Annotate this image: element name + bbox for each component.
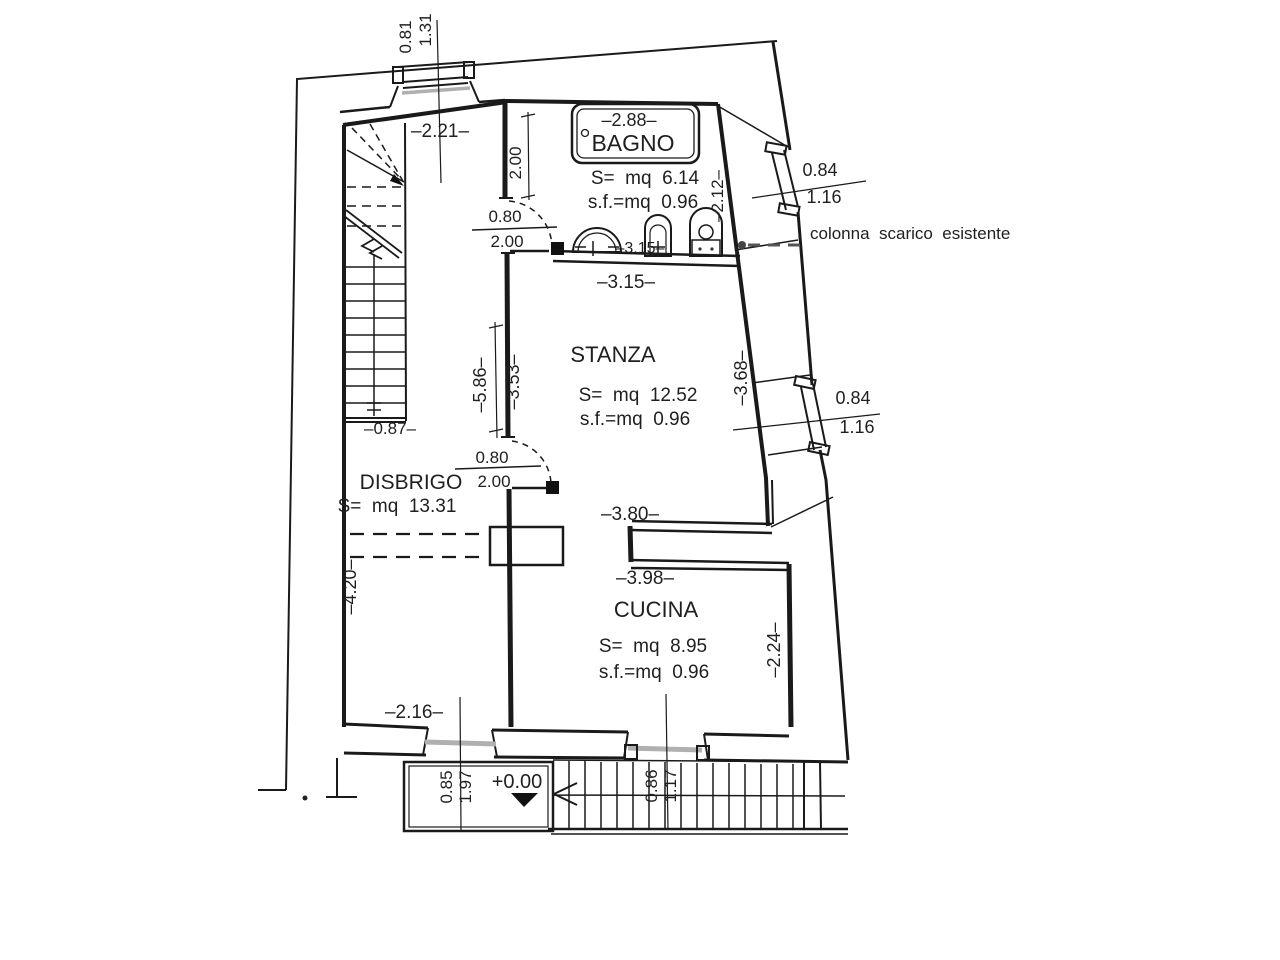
boundary-point — [303, 796, 308, 801]
stanza-area: S= mq 12.52 — [579, 385, 698, 406]
dim-2.16: –2.16– — [385, 702, 444, 723]
dim-bagno-width: –2.88– — [601, 110, 656, 130]
dim-window3-height: 1.17 — [661, 769, 680, 802]
dim-2.12: –2.12– — [708, 169, 727, 222]
level-label: +0.00 — [492, 771, 543, 793]
flue-box — [350, 527, 563, 565]
dim-3.53: –3.53– — [503, 354, 523, 409]
sink — [573, 228, 621, 256]
dim-window3-width: 0.86 — [642, 769, 661, 802]
floor-plan-drawing: –3.15– — [0, 0, 1280, 960]
room-label-stanza: STANZA — [570, 342, 655, 367]
dim-window1-height: 1.16 — [806, 187, 841, 207]
right-window-upper — [765, 142, 799, 215]
dim-5.86: –5.86– — [470, 357, 490, 412]
room-label-cucina: CUCINA — [614, 597, 699, 622]
bagno-area: S= mq 6.14 — [591, 168, 700, 189]
dim-window2-height: 1.16 — [839, 417, 874, 437]
dim-3.15: –3.15– — [597, 272, 656, 293]
dim-window2-width: 0.84 — [835, 388, 870, 408]
dim-2.21: –2.21– — [411, 121, 470, 142]
dim-2.24: –2.24– — [764, 622, 784, 677]
stanza-sf: s.f.=mq 0.96 — [580, 409, 690, 430]
floor-plan-canvas: –3.15– — [0, 0, 1280, 960]
dim-3.98: –3.98– — [616, 568, 675, 589]
dim-bagno-door-width: 0.80 — [488, 207, 521, 226]
dim-stanza-door-width: 0.80 — [475, 448, 508, 467]
room-label-bagno: BAGNO — [591, 130, 674, 156]
dim-door1-width: 0.85 — [437, 770, 456, 803]
right-window-lower — [794, 376, 829, 455]
labels: 0.81 1.31 –2.21– 2.00 –2.88– BAGNO S= mq… — [338, 13, 1011, 803]
dim-4.20: –4.20– — [340, 559, 360, 614]
cucina-area: S= mq 8.95 — [599, 636, 707, 657]
bagno-door-hinge — [551, 242, 564, 255]
cucina-sf: s.f.=mq 0.96 — [599, 662, 709, 683]
internal-staircase — [344, 124, 405, 416]
dim-3.15-inner: –3.15– — [616, 240, 665, 257]
stair-direction-chevron — [554, 783, 577, 805]
dim-0.87: –0.87– — [364, 419, 417, 438]
dim-stanza-door-height: 2.00 — [477, 472, 510, 491]
external-staircase — [548, 760, 848, 834]
dim-door1-height: 1.97 — [456, 770, 475, 803]
disbrigo-area: S= mq 13.31 — [338, 496, 457, 517]
dim-window1-width: 0.84 — [802, 160, 837, 180]
dim-corridor-2.00: 2.00 — [506, 146, 525, 179]
bagno-sf: s.f.=mq 0.96 — [588, 192, 698, 213]
colonna-scarico-label: colonna scarico esistente — [810, 224, 1010, 243]
dim-top-window-width: 0.81 — [396, 20, 415, 53]
stanza-door-hinge — [546, 481, 559, 494]
dim-bagno-door-height: 2.00 — [490, 232, 523, 251]
room-label-disbrigo: DISBRIGO — [360, 471, 463, 494]
dim-3.68: –3.68– — [731, 350, 751, 405]
dim-3.80: –3.80– — [601, 504, 660, 525]
dim-top-window-height: 1.31 — [416, 13, 435, 46]
level-marker-icon — [511, 793, 538, 807]
